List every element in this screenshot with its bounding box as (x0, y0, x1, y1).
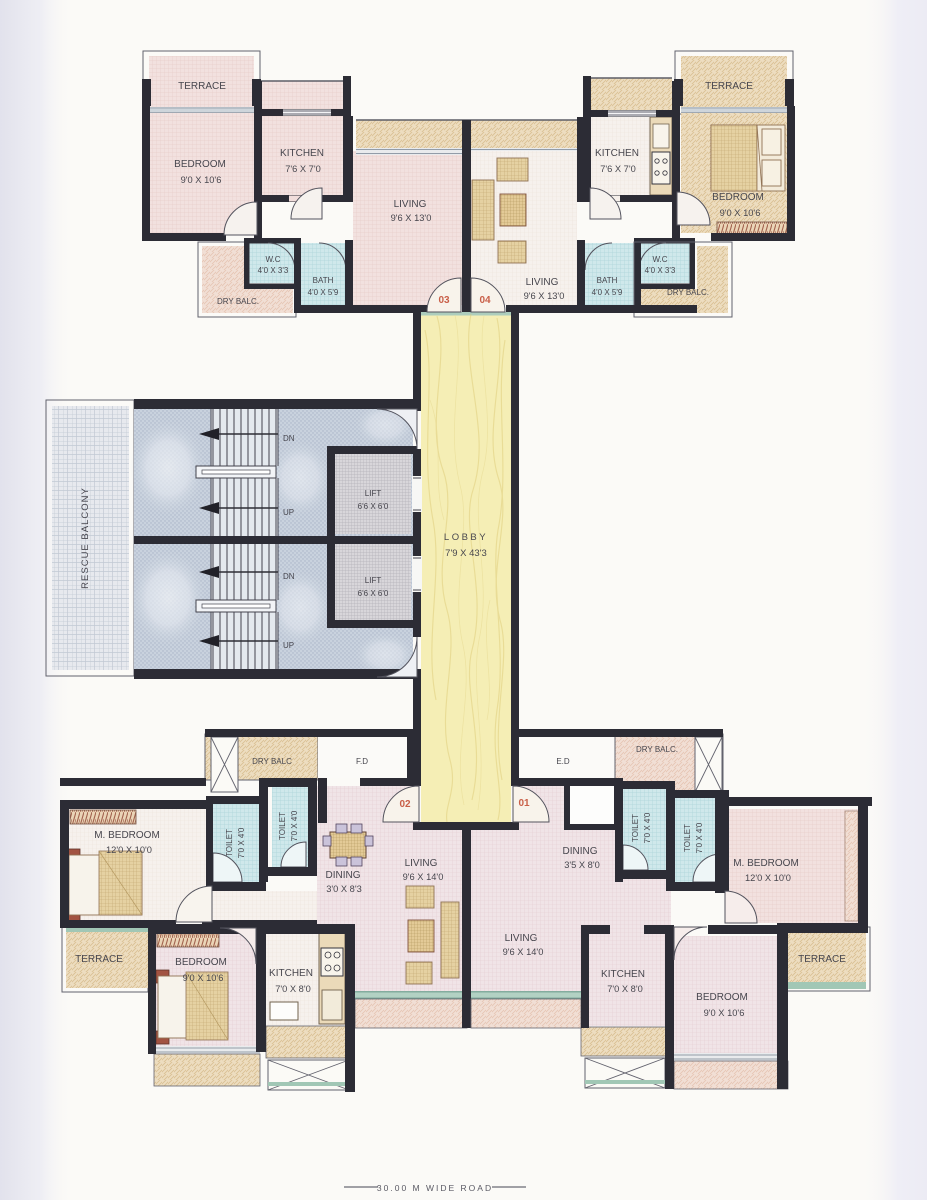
svg-text:30.00 M WIDE ROAD: 30.00 M WIDE ROAD (377, 1183, 493, 1193)
